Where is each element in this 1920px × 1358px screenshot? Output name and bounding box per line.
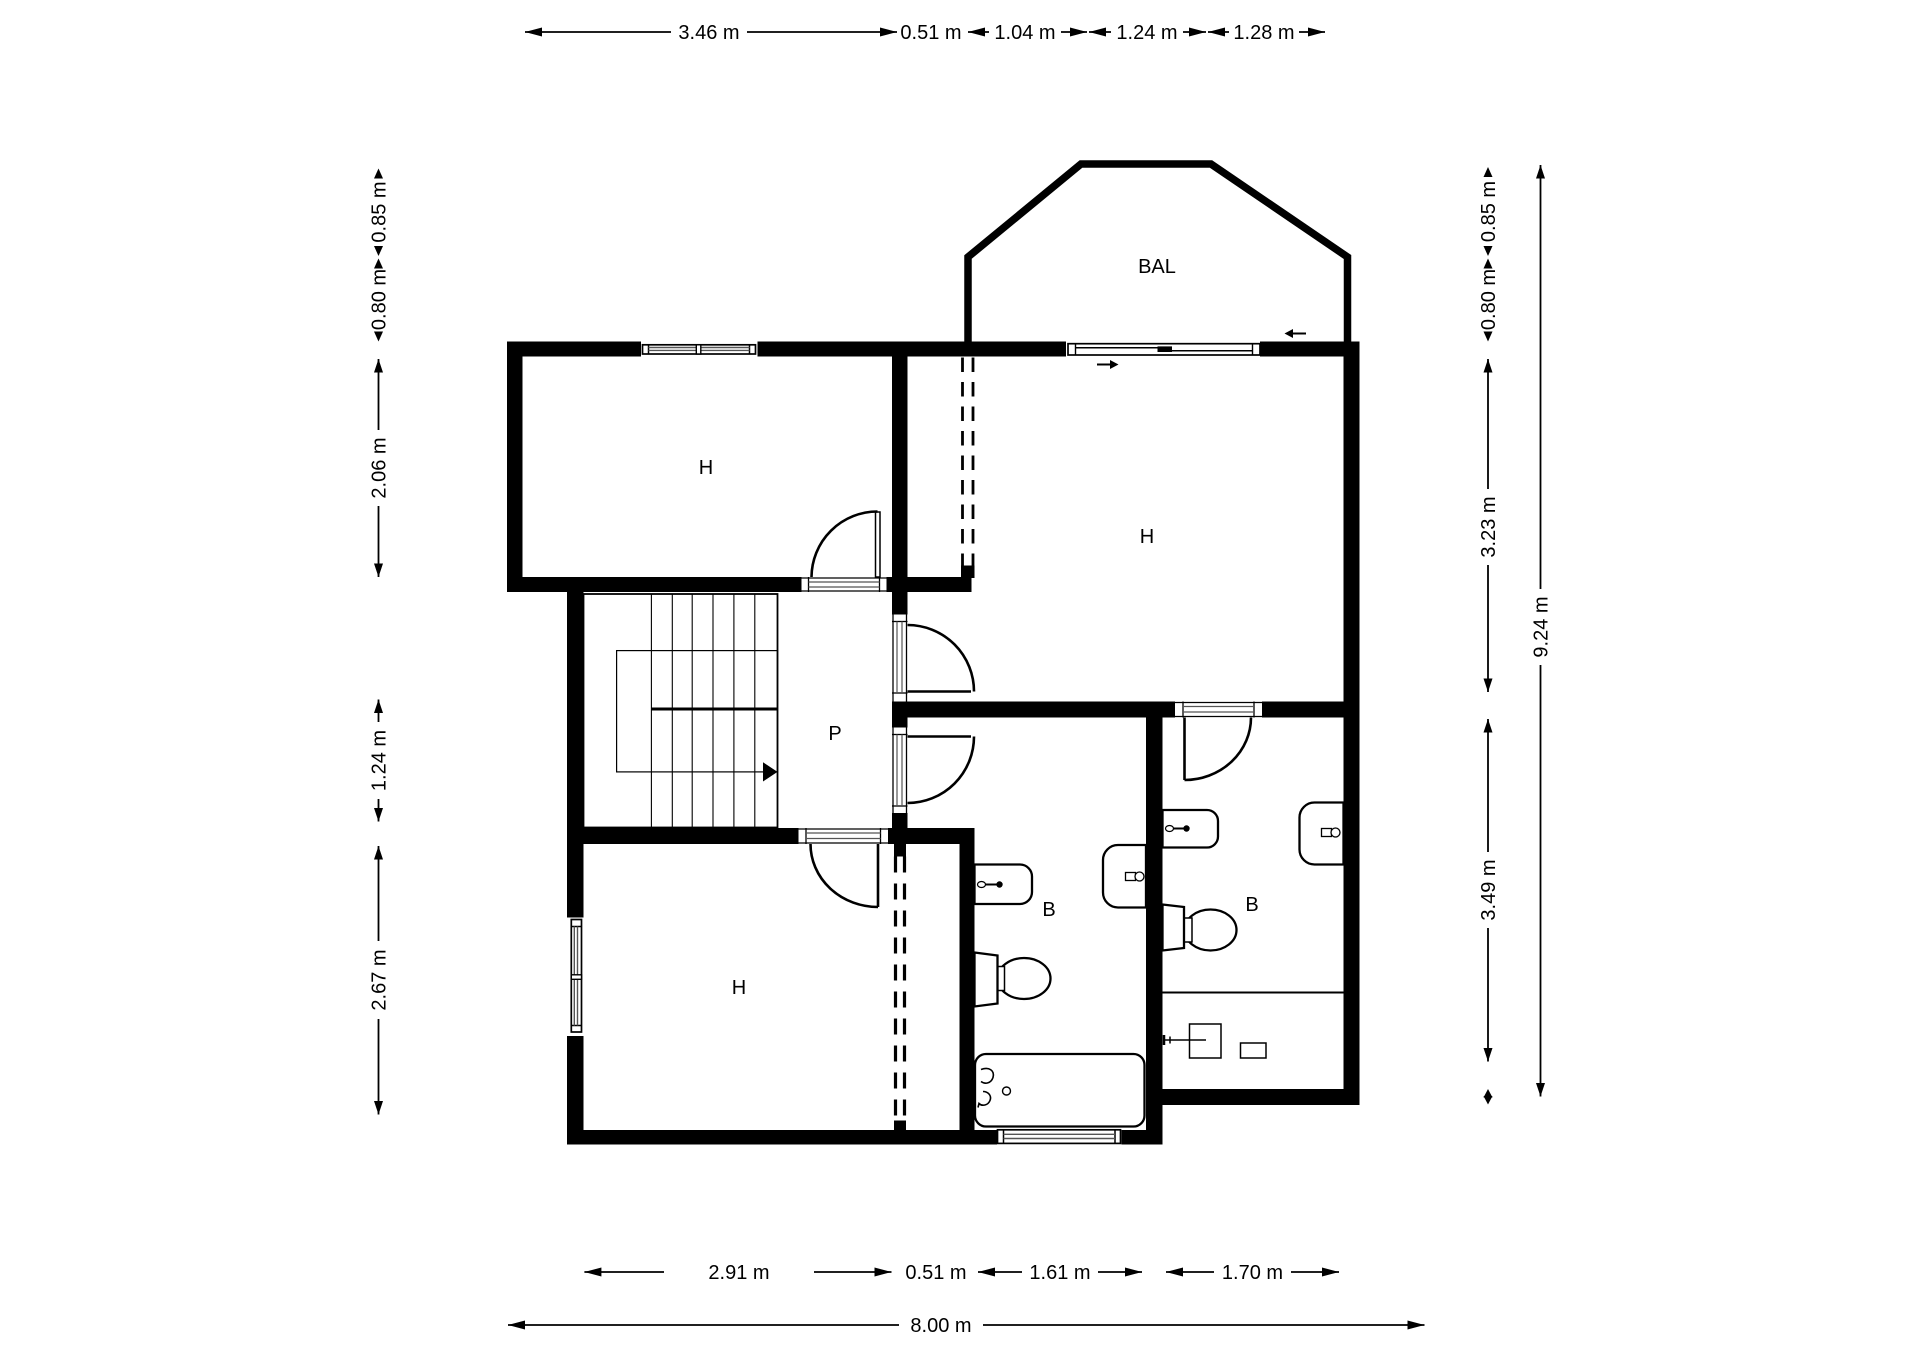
svg-text:0.85 m: 0.85 m xyxy=(1478,181,1500,242)
svg-text:0.80 m: 0.80 m xyxy=(1478,269,1500,330)
svg-text:9.24 m: 9.24 m xyxy=(1531,596,1553,657)
svg-text:1.61 m: 1.61 m xyxy=(1029,1262,1090,1284)
svg-text:B: B xyxy=(1245,894,1258,916)
svg-text:H: H xyxy=(732,977,746,999)
svg-text:2.91 m: 2.91 m xyxy=(708,1262,769,1284)
svg-text:1.28 m: 1.28 m xyxy=(1233,22,1294,44)
svg-text:0.80 m: 0.80 m xyxy=(369,269,391,330)
svg-text:P: P xyxy=(828,723,841,745)
svg-text:H: H xyxy=(1140,526,1154,548)
svg-text:2.67 m: 2.67 m xyxy=(369,949,391,1010)
svg-text:1.24 m: 1.24 m xyxy=(1116,22,1177,44)
svg-text:2.06 m: 2.06 m xyxy=(369,437,391,498)
svg-text:H: H xyxy=(699,457,713,479)
svg-text:1.70 m: 1.70 m xyxy=(1222,1262,1283,1284)
svg-text:8.00 m: 8.00 m xyxy=(910,1315,971,1337)
svg-text:3.49 m: 3.49 m xyxy=(1478,859,1500,920)
svg-text:B: B xyxy=(1042,899,1055,921)
svg-text:1.04 m: 1.04 m xyxy=(994,22,1055,44)
svg-text:3.46 m: 3.46 m xyxy=(678,22,739,44)
svg-text:0.51 m: 0.51 m xyxy=(905,1262,966,1284)
svg-text:3.23 m: 3.23 m xyxy=(1478,496,1500,557)
svg-text:0.51 m: 0.51 m xyxy=(900,22,961,44)
svg-text:BAL: BAL xyxy=(1138,256,1176,278)
svg-text:0.85 m: 0.85 m xyxy=(369,181,391,242)
svg-text:1.24 m: 1.24 m xyxy=(369,730,391,791)
